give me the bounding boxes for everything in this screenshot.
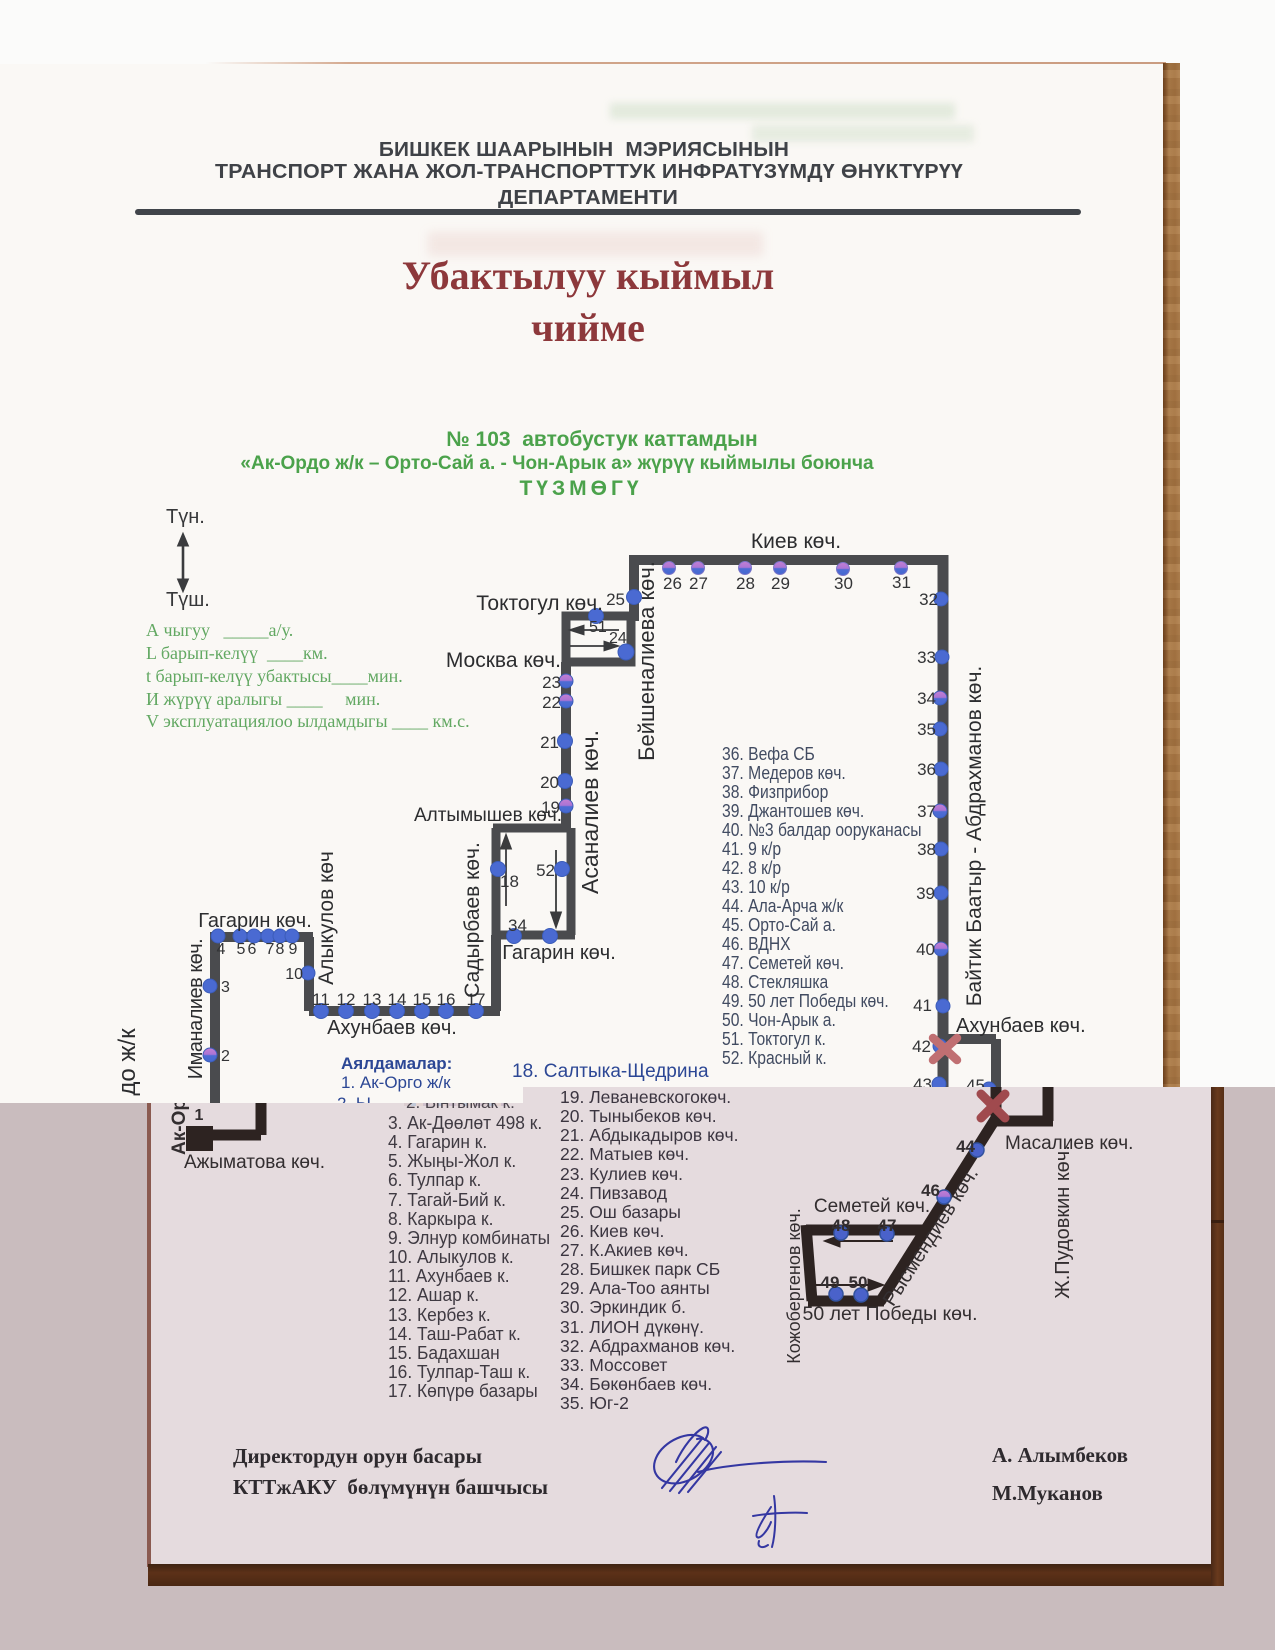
svg-text:10: 10 bbox=[285, 966, 303, 983]
svg-text:35: 35 bbox=[917, 720, 936, 739]
svg-text:31: 31 bbox=[892, 573, 911, 592]
svg-text:до ж/к: до ж/к bbox=[114, 1028, 141, 1096]
svg-text:Алыкулов көч: Алыкулов көч bbox=[315, 851, 338, 985]
svg-text:Ахунбаев көч.: Ахунбаев көч. bbox=[956, 1015, 1086, 1037]
svg-text:Бейшеналиева көч.: Бейшеналиева көч. bbox=[634, 561, 659, 761]
svg-text:Гагарин көч.: Гагарин көч. bbox=[198, 910, 312, 932]
svg-text:37: 37 bbox=[917, 802, 936, 821]
svg-text:Ахунбаев көч.: Ахунбаев көч. bbox=[327, 1017, 457, 1039]
svg-text:11: 11 bbox=[312, 990, 330, 1009]
svg-text:27: 27 bbox=[689, 574, 708, 593]
svg-text:34: 34 bbox=[508, 916, 527, 935]
svg-text:Ажыматова көч.: Ажыматова көч. bbox=[184, 1152, 325, 1173]
svg-text:44: 44 bbox=[956, 1137, 975, 1156]
svg-text:16: 16 bbox=[437, 990, 456, 1009]
svg-text:50: 50 bbox=[849, 1273, 868, 1292]
svg-text:23: 23 bbox=[542, 673, 561, 692]
svg-text:26: 26 bbox=[663, 574, 682, 593]
svg-text:Москва көч.: Москва көч. bbox=[446, 649, 561, 672]
svg-text:49: 49 bbox=[821, 1273, 840, 1292]
svg-text:3: 3 bbox=[221, 979, 230, 996]
svg-text:22: 22 bbox=[542, 693, 561, 712]
svg-text:39: 39 bbox=[916, 884, 935, 903]
svg-text:Киев көч.: Киев көч. bbox=[751, 530, 841, 553]
svg-text:8: 8 bbox=[276, 941, 285, 958]
svg-text:25: 25 bbox=[606, 590, 625, 609]
svg-text:21: 21 bbox=[540, 733, 559, 752]
svg-text:20: 20 bbox=[540, 773, 559, 792]
svg-text:Алтымышев көч.: Алтымышев көч. bbox=[414, 805, 562, 826]
svg-text:28: 28 bbox=[736, 574, 755, 593]
svg-text:6: 6 bbox=[248, 941, 257, 958]
svg-text:12: 12 bbox=[337, 990, 356, 1009]
svg-text:48: 48 bbox=[832, 1216, 851, 1235]
svg-text:52: 52 bbox=[536, 861, 555, 880]
svg-text:Садырбаев көч.: Садырбаев көч. bbox=[461, 842, 484, 998]
svg-text:15: 15 bbox=[413, 990, 432, 1009]
svg-text:36: 36 bbox=[917, 760, 936, 779]
svg-text:24: 24 bbox=[609, 630, 627, 647]
svg-text:13: 13 bbox=[363, 990, 382, 1009]
svg-text:47: 47 bbox=[878, 1216, 897, 1235]
svg-text:33: 33 bbox=[917, 648, 936, 667]
svg-text:Ж.Пудовкин көч.: Ж.Пудовкин көч. bbox=[1052, 1145, 1074, 1299]
svg-text:41: 41 bbox=[913, 996, 932, 1015]
svg-text:2: 2 bbox=[221, 1048, 230, 1065]
svg-text:29: 29 bbox=[771, 574, 790, 593]
svg-text:34: 34 bbox=[917, 689, 936, 708]
svg-text:Токтогул көч.: Токтогул көч. bbox=[476, 592, 603, 615]
svg-text:9: 9 bbox=[289, 941, 298, 958]
svg-text:14: 14 bbox=[388, 990, 407, 1009]
svg-text:Семетей көч.: Семетей көч. bbox=[814, 1196, 930, 1217]
svg-text:Иманалиев көч.: Иманалиев көч. bbox=[185, 939, 207, 1079]
svg-text:32: 32 bbox=[919, 590, 938, 609]
svg-text:1: 1 bbox=[195, 1107, 204, 1124]
svg-text:51: 51 bbox=[589, 619, 607, 636]
svg-text:4: 4 bbox=[217, 941, 226, 958]
svg-text:Байтик Баатыр - Абдрахманов кө: Байтик Баатыр - Абдрахманов көч. bbox=[963, 666, 986, 1007]
svg-text:5: 5 bbox=[237, 941, 246, 958]
svg-text:Асаналиев көч.: Асаналиев көч. bbox=[577, 730, 603, 894]
svg-text:38: 38 bbox=[917, 840, 936, 859]
svg-text:7: 7 bbox=[266, 941, 275, 958]
svg-text:40: 40 bbox=[916, 940, 935, 959]
svg-text:Ак-Ор: Ак-Ор bbox=[169, 1099, 190, 1155]
svg-text:30: 30 bbox=[834, 574, 853, 593]
svg-text:18: 18 bbox=[500, 872, 519, 891]
svg-text:Гагарин көч.: Гагарин көч. bbox=[502, 942, 616, 964]
svg-text:Кожобергенов көч.: Кожобергенов көч. bbox=[784, 1208, 804, 1363]
svg-text:42: 42 bbox=[912, 1037, 931, 1056]
